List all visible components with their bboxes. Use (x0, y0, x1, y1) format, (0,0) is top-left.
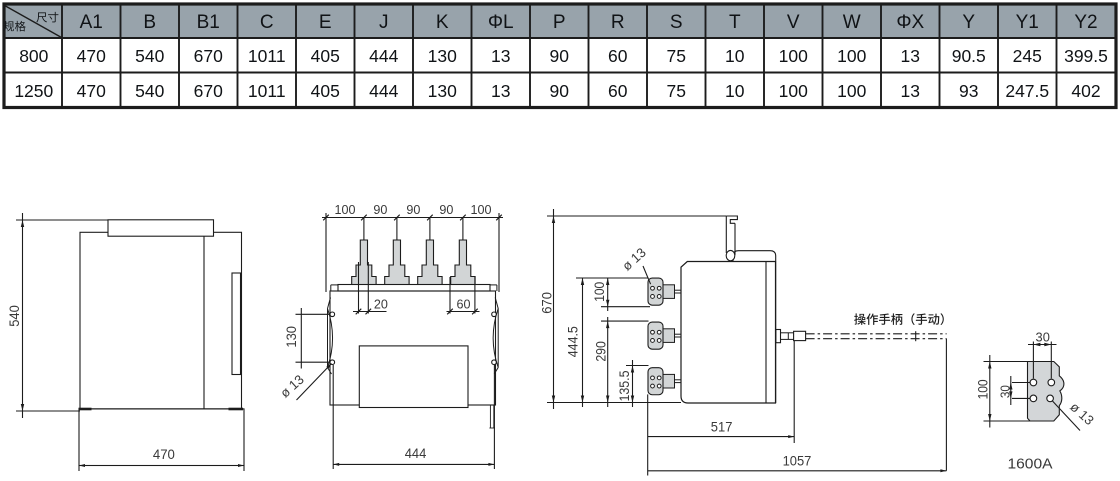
svg-text:60: 60 (457, 297, 471, 312)
svg-text:C: C (260, 12, 274, 33)
svg-text:670: 670 (538, 292, 554, 314)
svg-text:517: 517 (711, 419, 733, 435)
svg-text:1011: 1011 (248, 81, 286, 101)
svg-text:1057: 1057 (783, 452, 812, 468)
svg-text:670: 670 (194, 81, 223, 101)
svg-text:Y: Y (962, 12, 975, 33)
svg-text:800: 800 (19, 46, 48, 66)
svg-text:30: 30 (998, 385, 1013, 398)
svg-text:ΦL: ΦL (488, 12, 514, 33)
svg-text:13: 13 (901, 81, 920, 101)
svg-text:30: 30 (1036, 330, 1050, 345)
svg-text:540: 540 (6, 305, 22, 327)
svg-text:10: 10 (725, 81, 745, 101)
svg-text:100: 100 (837, 81, 866, 101)
svg-text:90: 90 (406, 202, 420, 217)
svg-text:60: 60 (608, 46, 628, 66)
svg-text:540: 540 (135, 46, 164, 66)
svg-text:90: 90 (439, 202, 453, 217)
svg-text:Y2: Y2 (1074, 12, 1097, 33)
svg-text:100: 100 (975, 379, 990, 399)
svg-text:13: 13 (901, 46, 920, 66)
svg-text:J: J (379, 12, 389, 33)
svg-text:P: P (553, 12, 566, 33)
svg-text:90: 90 (550, 81, 570, 101)
svg-text:444.5: 444.5 (565, 326, 581, 357)
svg-text:1600A: 1600A (1008, 457, 1053, 473)
svg-text:W: W (843, 12, 861, 33)
svg-text:1250: 1250 (14, 81, 53, 101)
svg-text:90: 90 (373, 202, 387, 217)
svg-text:ΦX: ΦX (896, 12, 924, 33)
svg-text:A1: A1 (80, 12, 103, 33)
svg-text:444: 444 (405, 445, 427, 461)
svg-text:100: 100 (837, 46, 866, 66)
svg-text:100: 100 (591, 282, 607, 302)
svg-text:100: 100 (471, 202, 492, 217)
svg-text:1011: 1011 (248, 46, 286, 66)
svg-text:T: T (729, 12, 741, 33)
svg-text:444: 444 (369, 81, 398, 101)
svg-text:93: 93 (959, 81, 978, 101)
svg-text:S: S (670, 12, 683, 33)
svg-text:402: 402 (1071, 81, 1100, 101)
svg-text:100: 100 (335, 202, 356, 217)
svg-text:405: 405 (311, 46, 340, 66)
svg-text:100: 100 (779, 81, 808, 101)
svg-text:444: 444 (369, 46, 398, 66)
svg-text:K: K (436, 12, 449, 33)
svg-text:V: V (787, 12, 800, 33)
svg-text:540: 540 (135, 81, 164, 101)
svg-text:75: 75 (667, 81, 686, 101)
svg-text:90: 90 (550, 46, 570, 66)
svg-text:290: 290 (593, 341, 609, 362)
svg-text:470: 470 (153, 446, 175, 462)
svg-text:13: 13 (491, 46, 510, 66)
svg-text:Y1: Y1 (1016, 12, 1039, 33)
svg-text:B: B (143, 12, 156, 33)
svg-text:90.5: 90.5 (952, 46, 986, 66)
svg-text:R: R (611, 12, 625, 33)
svg-text:75: 75 (667, 46, 686, 66)
svg-text:60: 60 (608, 81, 628, 101)
svg-text:100: 100 (779, 46, 808, 66)
svg-text:E: E (319, 12, 332, 33)
svg-text:135.5: 135.5 (616, 370, 632, 401)
svg-text:130: 130 (428, 46, 457, 66)
svg-text:245: 245 (1013, 46, 1042, 66)
svg-text:20: 20 (374, 297, 388, 312)
svg-text:10: 10 (725, 46, 745, 66)
svg-text:247.5: 247.5 (1005, 81, 1049, 101)
svg-text:405: 405 (311, 81, 340, 101)
svg-text:13: 13 (491, 81, 510, 101)
svg-text:670: 670 (194, 46, 223, 66)
svg-text:399.5: 399.5 (1064, 46, 1108, 66)
svg-text:470: 470 (77, 46, 106, 66)
svg-text:470: 470 (77, 81, 106, 101)
svg-text:130: 130 (428, 81, 457, 101)
svg-text:130: 130 (283, 326, 299, 348)
svg-text:B1: B1 (197, 12, 220, 33)
